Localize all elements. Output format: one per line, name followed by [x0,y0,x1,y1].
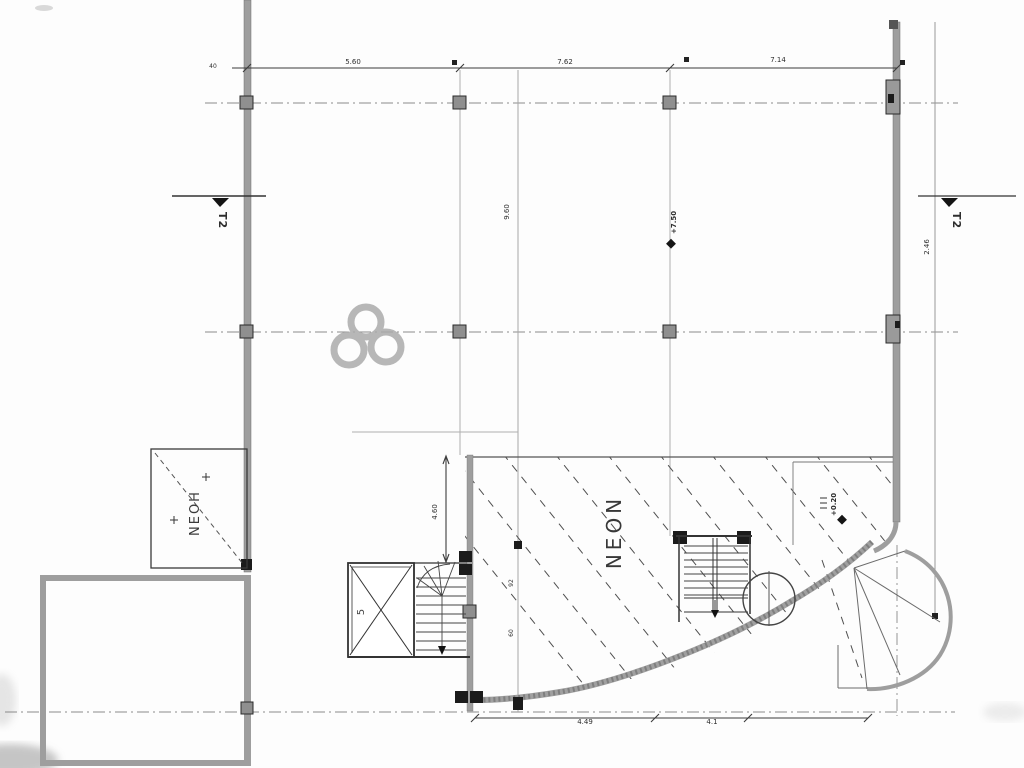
section-arrow-icon [212,198,229,207]
hatch-area [380,430,1024,730]
floor-plan-drawing: ΝΕΟΗ 5 T [0,0,1024,768]
t2-left-label: T2 [216,212,229,229]
dim-top-3: 7.14 [770,56,786,64]
scanned-floor-plan-page: ΝΕΟΗ 5 T [0,0,1024,768]
column [463,605,476,618]
stairwell-2 [676,536,752,622]
columns [240,80,900,714]
level-marker-mid: +7.50 [666,211,678,249]
grid-lines [5,103,958,716]
scan-artifacts [0,5,1024,768]
left-zone-box: ΝΕΟΗ [151,449,247,568]
construction-lines [352,22,935,712]
room-wall-left [40,576,46,764]
room-wall-bottom [40,760,251,766]
dimension-tick-blobs [452,57,905,65]
stair-direction-arrow [438,646,446,655]
section-marker-t2-right: T2 [918,196,1016,229]
stair2-treads [684,546,748,595]
wall-fan-arc [867,551,951,689]
room-wall-top [40,575,251,581]
dimension-lines [232,64,901,722]
level-marker-right: +0.20 [820,493,847,525]
level-right-label: +0.20 [830,493,838,516]
dim-right-vertical: 2.46 [923,239,931,255]
room-wall-right [244,575,251,765]
round-column [743,571,795,626]
wall-mid [467,455,473,711]
t2-right-label: T2 [950,212,963,229]
fan-segment [838,551,940,689]
main-zone-label: ΝΕΟΝ [602,495,626,569]
wall-right-curve-join [874,522,896,551]
stair2-direction-arrow [711,610,719,618]
column [453,325,466,338]
wall-curved [477,542,872,700]
column [663,325,676,338]
level-area-outline [793,462,895,545]
dim-hatch-upper: 92 [508,579,515,587]
dim-top-2: 7.62 [557,58,573,66]
dim-hatch-lower: 60 [508,629,515,637]
trefoil-knot-watermark-icon [334,307,401,365]
dim-top-1: 5.60 [345,58,361,66]
section-arrow-icon [941,198,958,207]
pilaster [886,315,900,343]
dim-top-left-tick: 40 [209,63,217,70]
level-stack-icon [820,498,827,508]
shaft-label: 5 [356,609,367,615]
left-zone-label: ΝΕΟΗ [188,490,203,536]
column [453,96,466,109]
wall-curved-texture [477,542,872,700]
stair-treads [416,561,466,650]
column [241,702,253,714]
walls [40,0,951,766]
section-marker-t2-left: T2 [172,196,266,229]
dim-bottom-2: 4.1 [706,718,717,726]
dim-grid-vertical: 9.60 [503,204,511,220]
column [240,96,253,109]
column [240,325,253,338]
column [663,96,676,109]
dim-stair-vertical: 4.60 [431,504,439,520]
level-mid-label: +7.50 [670,211,678,234]
dim-bottom-1: 4.49 [577,718,593,726]
